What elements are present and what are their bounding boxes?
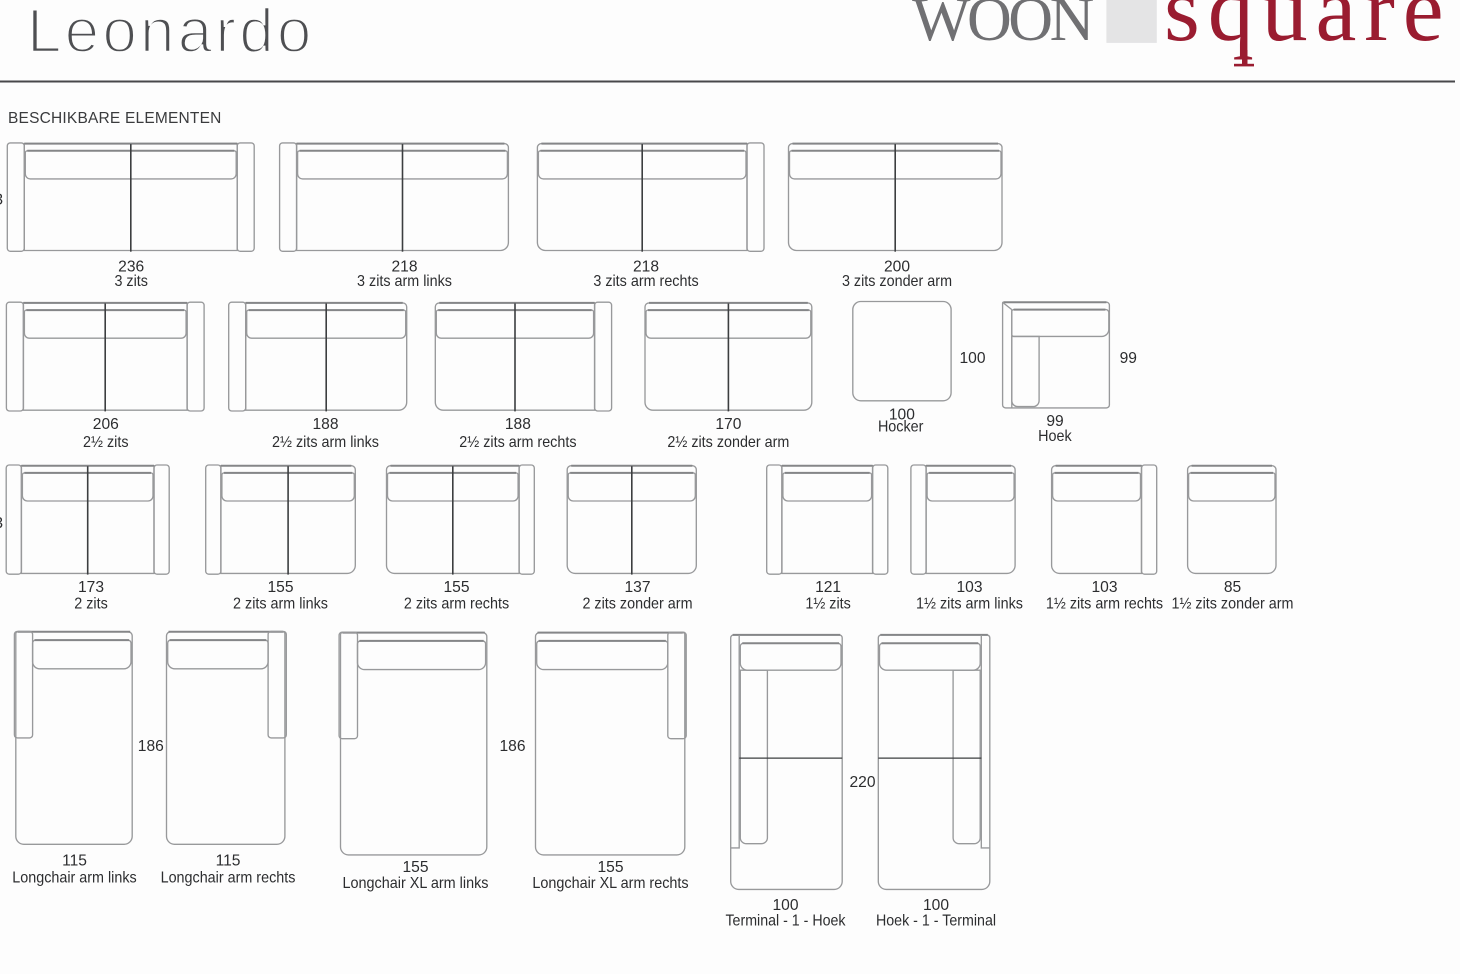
svg-text:220: 220 <box>849 774 875 791</box>
svg-text:206: 206 <box>93 416 119 433</box>
svg-text:3 zits arm links: 3 zits arm links <box>357 273 452 290</box>
svg-text:1½ zits zonder arm: 1½ zits zonder arm <box>1172 596 1294 613</box>
svg-text:WOON: WOON <box>912 0 1094 54</box>
svg-text:170: 170 <box>715 416 741 433</box>
svg-text:173: 173 <box>78 579 104 596</box>
svg-text:2½ zits arm rechts: 2½ zits arm rechts <box>459 434 576 451</box>
svg-text:155: 155 <box>267 579 293 596</box>
svg-text:3 zits zonder arm: 3 zits zonder arm <box>842 273 952 290</box>
svg-text:Hocker: Hocker <box>878 418 924 435</box>
svg-text:Longchair arm links: Longchair arm links <box>12 870 137 887</box>
svg-text:BESCHIKBARE ELEMENTEN: BESCHIKBARE ELEMENTEN <box>8 110 222 127</box>
svg-text:155: 155 <box>443 579 469 596</box>
svg-text:85: 85 <box>1224 579 1242 596</box>
svg-text:3 zits arm rechts: 3 zits arm rechts <box>593 273 698 290</box>
svg-text:121: 121 <box>815 579 841 596</box>
svg-text:square: square <box>1164 0 1452 60</box>
svg-text:Leonardo: Leonardo <box>27 0 315 66</box>
svg-text:115: 115 <box>216 853 241 870</box>
svg-text:155: 155 <box>402 859 428 876</box>
svg-text:115: 115 <box>62 853 87 870</box>
svg-text:2 zits arm rechts: 2 zits arm rechts <box>404 596 509 613</box>
svg-text:3: 3 <box>0 515 3 532</box>
svg-text:2½ zits: 2½ zits <box>83 434 129 451</box>
svg-text:3: 3 <box>0 192 3 209</box>
svg-text:188: 188 <box>505 416 531 433</box>
svg-text:2 zits arm links: 2 zits arm links <box>233 596 328 613</box>
svg-text:2 zits: 2 zits <box>74 596 108 613</box>
svg-text:2½ zits zonder arm: 2½ zits zonder arm <box>667 434 789 451</box>
svg-text:155: 155 <box>597 859 623 876</box>
svg-text:Hoek - 1 - Terminal: Hoek - 1 - Terminal <box>876 913 996 930</box>
svg-text:Longchair XL arm links: Longchair XL arm links <box>343 875 489 892</box>
svg-text:1½ zits: 1½ zits <box>805 596 851 613</box>
svg-text:186: 186 <box>138 738 164 755</box>
svg-text:103: 103 <box>1091 579 1117 596</box>
svg-text:99: 99 <box>1120 350 1137 367</box>
svg-text:1½ zits arm links: 1½ zits arm links <box>916 596 1023 613</box>
svg-text:Longchair arm rechts: Longchair arm rechts <box>161 870 296 887</box>
svg-text:103: 103 <box>956 579 982 596</box>
svg-text:2½ zits arm links: 2½ zits arm links <box>272 434 379 451</box>
svg-text:Longchair XL arm rechts: Longchair XL arm rechts <box>532 875 688 892</box>
svg-text:2 zits zonder arm: 2 zits zonder arm <box>582 596 692 613</box>
svg-text:Hoek: Hoek <box>1038 428 1072 445</box>
svg-text:137: 137 <box>624 579 650 596</box>
svg-text:188: 188 <box>312 416 338 433</box>
svg-text:1½ zits arm rechts: 1½ zits arm rechts <box>1046 596 1163 613</box>
svg-text:100: 100 <box>960 350 986 367</box>
svg-text:186: 186 <box>499 738 525 755</box>
svg-text:Terminal - 1 - Hoek: Terminal - 1 - Hoek <box>725 913 845 930</box>
svg-text:3 zits: 3 zits <box>114 273 148 290</box>
